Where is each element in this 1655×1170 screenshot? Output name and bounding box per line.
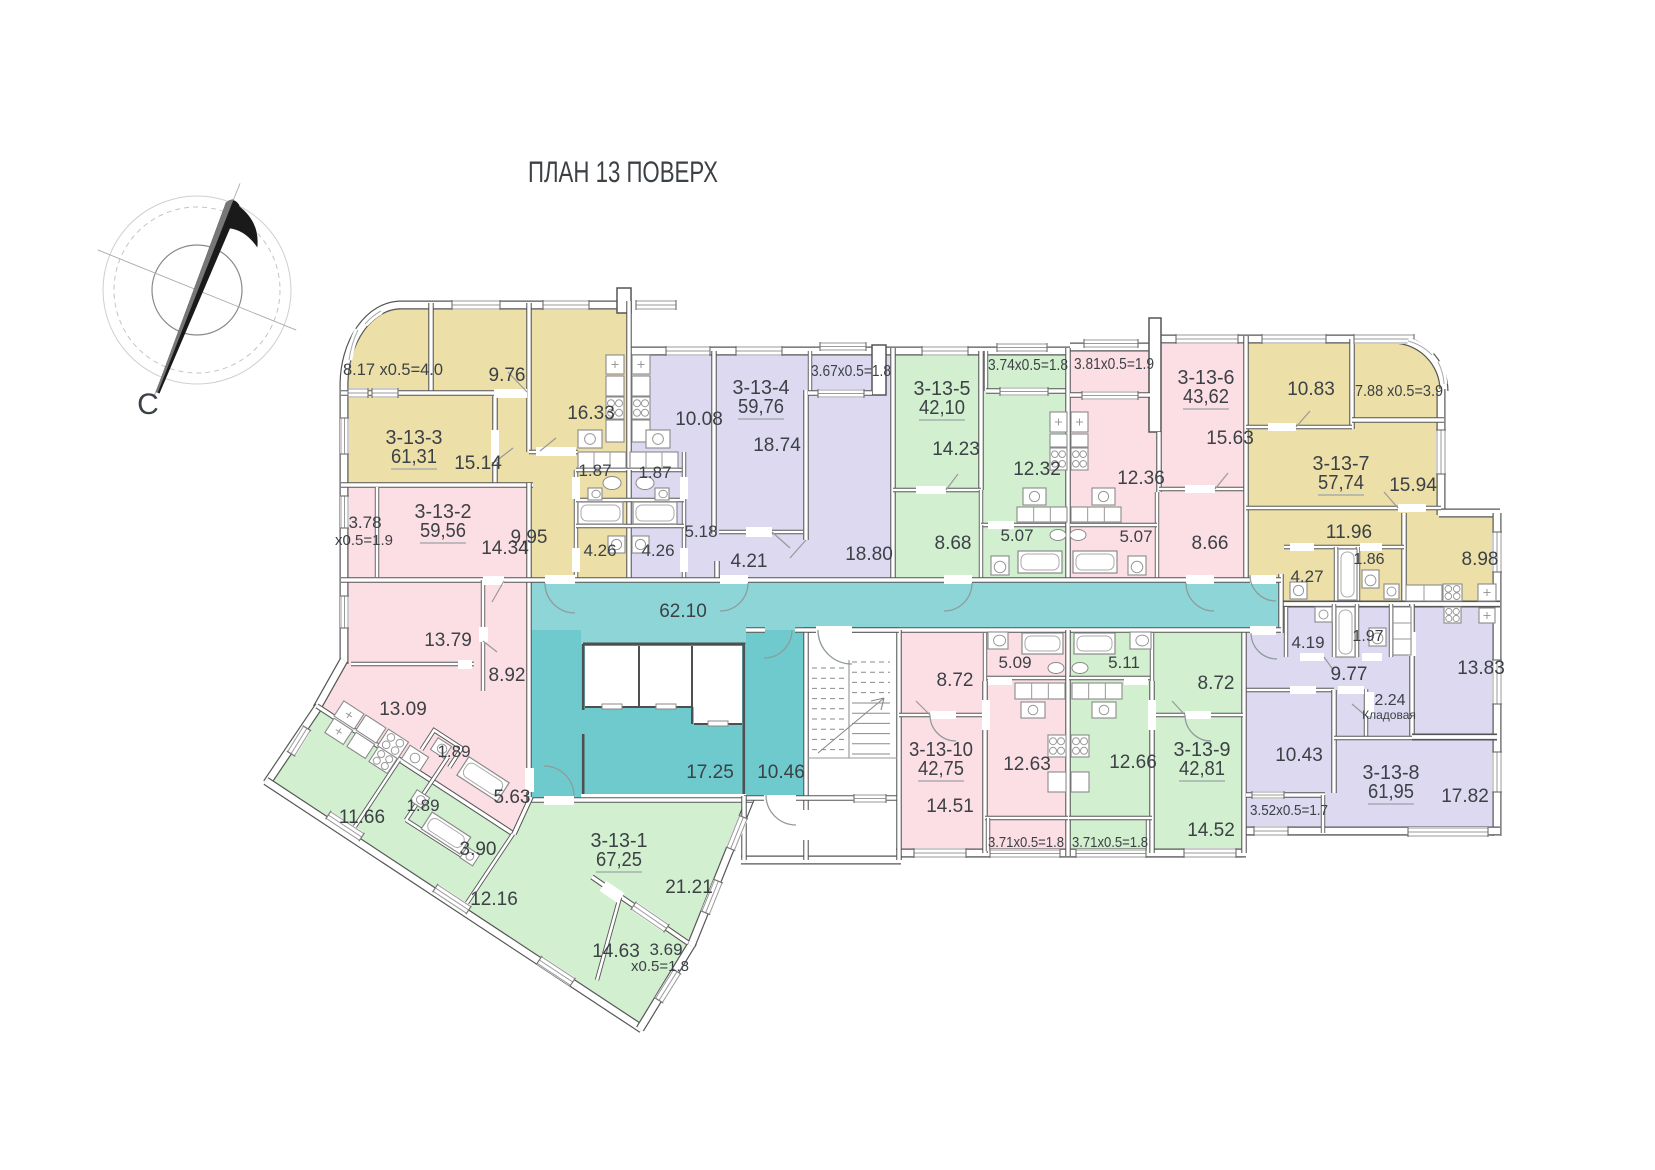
svg-text:3.90: 3.90 xyxy=(460,839,497,860)
svg-text:8.92: 8.92 xyxy=(489,665,526,686)
svg-text:14.34: 14.34 xyxy=(481,538,529,559)
svg-text:13.79: 13.79 xyxy=(424,630,472,651)
svg-text:1.89: 1.89 xyxy=(406,796,439,815)
svg-text:1.97: 1.97 xyxy=(1352,628,1383,645)
svg-text:5.11: 5.11 xyxy=(1108,653,1140,672)
svg-text:8.72: 8.72 xyxy=(937,670,974,691)
svg-text:17.82: 17.82 xyxy=(1441,786,1489,807)
svg-text:3.74x0.5=1.8: 3.74x0.5=1.8 xyxy=(988,357,1068,374)
svg-text:7.88 x0.5=3.9: 7.88 x0.5=3.9 xyxy=(1355,383,1443,400)
svg-text:8.66: 8.66 xyxy=(1192,533,1229,554)
svg-text:3.78: 3.78 xyxy=(348,513,381,532)
svg-text:3.71x0.5=1.8: 3.71x0.5=1.8 xyxy=(988,834,1064,851)
svg-text:14.52: 14.52 xyxy=(1187,820,1235,841)
svg-text:13.83: 13.83 xyxy=(1457,658,1505,679)
svg-text:11.96: 11.96 xyxy=(1326,522,1372,543)
svg-text:13.09: 13.09 xyxy=(379,699,427,720)
svg-text:5.18: 5.18 xyxy=(684,522,717,541)
svg-text:67,25: 67,25 xyxy=(596,849,642,871)
svg-text:5.09: 5.09 xyxy=(998,653,1031,672)
svg-text:10.43: 10.43 xyxy=(1275,745,1323,766)
svg-text:10.46: 10.46 xyxy=(757,762,805,783)
svg-text:3.69: 3.69 xyxy=(649,940,682,959)
svg-text:5.07: 5.07 xyxy=(1000,526,1033,545)
svg-text:8.17 x0.5=4.0: 8.17 x0.5=4.0 xyxy=(343,360,443,379)
svg-text:3.67x0.5=1.8: 3.67x0.5=1.8 xyxy=(811,363,891,380)
svg-text:9.77: 9.77 xyxy=(1331,664,1368,685)
svg-text:12.66: 12.66 xyxy=(1109,752,1157,773)
svg-text:17.25: 17.25 xyxy=(686,762,734,783)
svg-text:Кладовая: Кладовая xyxy=(1362,708,1416,722)
svg-text:61,95: 61,95 xyxy=(1368,781,1414,803)
svg-text:2.24: 2.24 xyxy=(1374,692,1405,709)
svg-text:8.68: 8.68 xyxy=(935,533,972,554)
svg-text:42,10: 42,10 xyxy=(919,397,965,419)
svg-text:12.36: 12.36 xyxy=(1117,468,1165,489)
svg-text:42,75: 42,75 xyxy=(918,758,964,780)
svg-text:x0.5=1.8: x0.5=1.8 xyxy=(631,958,689,975)
svg-text:1.89: 1.89 xyxy=(437,742,470,761)
svg-text:4.26: 4.26 xyxy=(641,541,674,560)
svg-text:10.08: 10.08 xyxy=(675,409,723,430)
svg-text:4.21: 4.21 xyxy=(731,551,768,572)
svg-text:8.72: 8.72 xyxy=(1198,673,1235,694)
svg-text:14.23: 14.23 xyxy=(932,439,980,460)
svg-text:4.26: 4.26 xyxy=(583,541,616,560)
svg-text:ПЛАН 13 ПОВЕРХ: ПЛАН 13 ПОВЕРХ xyxy=(528,156,718,189)
svg-text:18.80: 18.80 xyxy=(845,544,893,565)
svg-text:59,56: 59,56 xyxy=(420,520,466,542)
svg-text:С: С xyxy=(137,388,159,421)
svg-text:12.16: 12.16 xyxy=(470,889,518,910)
svg-text:12.32: 12.32 xyxy=(1013,459,1061,480)
svg-text:15.94: 15.94 xyxy=(1389,475,1437,496)
svg-text:42,81: 42,81 xyxy=(1179,758,1225,780)
svg-text:43,62: 43,62 xyxy=(1183,386,1229,408)
svg-text:14.51: 14.51 xyxy=(926,796,974,817)
svg-text:61,31: 61,31 xyxy=(391,446,437,468)
svg-text:57,74: 57,74 xyxy=(1318,472,1364,494)
svg-text:3.71x0.5=1.8: 3.71x0.5=1.8 xyxy=(1072,834,1148,851)
svg-text:3.81x0.5=1.9: 3.81x0.5=1.9 xyxy=(1074,356,1154,373)
svg-text:9.76: 9.76 xyxy=(489,365,526,386)
svg-text:1.87: 1.87 xyxy=(638,463,671,482)
svg-text:21.21: 21.21 xyxy=(665,877,713,898)
svg-text:5.07: 5.07 xyxy=(1119,527,1152,546)
svg-text:5.63: 5.63 xyxy=(494,787,531,808)
svg-text:4.19: 4.19 xyxy=(1291,633,1324,652)
svg-text:3.52x0.5=1.7: 3.52x0.5=1.7 xyxy=(1250,802,1328,819)
svg-text:1.87: 1.87 xyxy=(578,461,611,480)
svg-text:18.74: 18.74 xyxy=(753,435,801,456)
svg-text:59,76: 59,76 xyxy=(738,396,784,418)
svg-text:4.27: 4.27 xyxy=(1290,567,1323,586)
svg-text:8.98: 8.98 xyxy=(1462,549,1499,570)
svg-text:10.83: 10.83 xyxy=(1287,379,1335,400)
svg-text:62.10: 62.10 xyxy=(659,601,707,622)
svg-text:15.63: 15.63 xyxy=(1206,428,1254,449)
svg-text:11.66: 11.66 xyxy=(339,807,385,828)
svg-text:16.33: 16.33 xyxy=(567,403,615,424)
svg-text:15.14: 15.14 xyxy=(454,453,502,474)
svg-text:1.86: 1.86 xyxy=(1353,551,1384,568)
svg-text:12.63: 12.63 xyxy=(1003,754,1051,775)
svg-text:x0.5=1.9: x0.5=1.9 xyxy=(335,532,393,549)
